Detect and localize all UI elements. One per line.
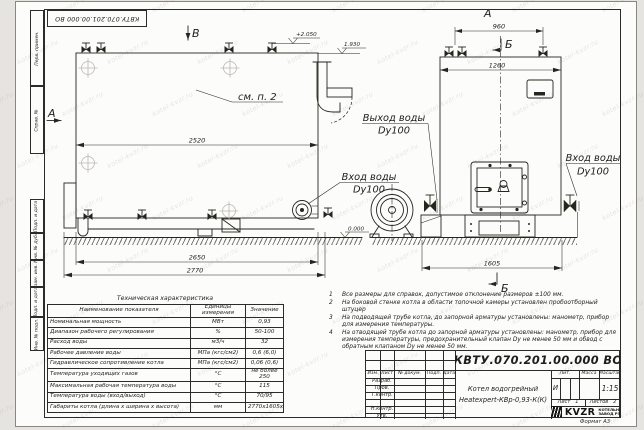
view-label-A-front: А bbox=[483, 7, 492, 20]
furnace-door-icon bbox=[471, 162, 528, 213]
frame-column-vzam-inv: Взам. инв. № bbox=[30, 260, 44, 287]
table-cell: % bbox=[191, 328, 246, 338]
roof-valve-icon bbox=[225, 43, 234, 53]
elevation-0000: 0.000 bbox=[341, 227, 370, 238]
table-cell: °С bbox=[191, 382, 246, 392]
mid-foot bbox=[198, 229, 212, 236]
frame-column-sprav: Справ. № bbox=[30, 86, 44, 154]
frame-column-podp-data-2: Подп. и дата bbox=[30, 287, 44, 317]
svg-text:Dy100: Dy100 bbox=[353, 185, 385, 196]
table-cell: °С bbox=[191, 369, 246, 382]
doc-number: КВТУ.070.201.00.000 ВО bbox=[455, 351, 621, 370]
svg-text:Dy100: Dy100 bbox=[378, 126, 410, 137]
svg-text:Вход воды: Вход воды bbox=[342, 172, 397, 183]
mass-label: Масса bbox=[579, 370, 599, 378]
table-row: Гидравлическое сопротивление котлаМПа (к… bbox=[48, 359, 284, 369]
table-cell: МВт bbox=[191, 318, 246, 328]
frame-column-podp-data-1: Подп. и дата bbox=[30, 199, 44, 233]
scale-label: Масштаб bbox=[599, 370, 621, 378]
table-row: Габариты котла (длина х ширина х высота)… bbox=[48, 402, 284, 412]
table-cell: Гидравлическое сопротивление котла bbox=[48, 359, 191, 369]
svg-text:Dy100: Dy100 bbox=[577, 167, 609, 178]
elevation-2050-label: +2.050 bbox=[296, 32, 317, 38]
table-header: Наименование показателя bbox=[48, 305, 191, 318]
row-utv: Утв. bbox=[366, 413, 396, 420]
product-name: Котел водогрейный Heatexpert-КВр-0,93-К(… bbox=[455, 370, 551, 419]
kvzr-logo: KVZR КОТЕЛЬНЫЙ ЗАВОД РЭП bbox=[551, 406, 621, 419]
drain-valve-icon bbox=[208, 210, 217, 220]
frame-column-perv-primen: Перв. примен. bbox=[30, 10, 44, 86]
kvzr-logo-icon bbox=[551, 406, 562, 418]
inlet-side-callout: Вход воды Dy100 bbox=[308, 172, 399, 204]
frame-column-inv-podl: Инв. № подл. bbox=[30, 317, 44, 351]
note-number: 1 bbox=[329, 292, 342, 299]
tech-table: Наименование показателя Единицы измерени… bbox=[47, 304, 284, 413]
dimension-2650: 2650 bbox=[76, 232, 318, 265]
base-pedestal bbox=[465, 215, 535, 237]
table-cell: Температура уходящих газов bbox=[48, 369, 191, 382]
position-mark-icon bbox=[221, 59, 240, 78]
table-cell: 50-100 bbox=[246, 328, 284, 338]
note-item: 3На подводящей трубе котла, до запорной … bbox=[329, 315, 620, 329]
elevation-1930: 1.930 bbox=[318, 42, 366, 54]
lit-value: И bbox=[551, 378, 560, 399]
table-cell: не более 250 bbox=[246, 369, 284, 382]
table-cell: Габариты котла (длина х ширина х высота) bbox=[48, 402, 191, 412]
note-text: На боковой стенке котла в области топочн… bbox=[342, 300, 620, 314]
table-row: Температура уходящих газов°Сне более 250 bbox=[48, 369, 284, 382]
col-doc: № докум. bbox=[394, 370, 425, 378]
scale-value: 1:15 bbox=[599, 378, 621, 399]
dimension-1260: 1260 bbox=[440, 62, 561, 73]
padlock-icon bbox=[498, 181, 509, 192]
position-mark-icon bbox=[79, 59, 98, 78]
table-row: Расход водым3/ч32 bbox=[48, 338, 284, 348]
note-item: 2На боковой стенке котла в области топоч… bbox=[329, 300, 620, 314]
table-cell: 115 bbox=[246, 382, 284, 392]
dim-1260-label: 1260 bbox=[489, 62, 506, 70]
note-text: На отводящей трубе котла до запорной арм… bbox=[342, 330, 620, 351]
col-izm: Изм. bbox=[366, 370, 380, 378]
table-cell: Максимальная рабочая температура воды bbox=[48, 382, 191, 392]
table-row: Диапазон рабочего регулирования%50-100 bbox=[48, 328, 284, 338]
dimension-960: 960 bbox=[455, 23, 543, 46]
table-cell: Температура воды (вход/выход) bbox=[48, 392, 191, 402]
rear-smokebox bbox=[64, 183, 76, 228]
dimension-2520: 2520 bbox=[76, 137, 318, 148]
lit-label: Лит. bbox=[551, 370, 579, 378]
sheets-cell: Листов2 bbox=[585, 399, 621, 406]
row-nkontr: Н.контр. bbox=[366, 406, 396, 413]
col-sign: Подп. bbox=[425, 370, 443, 378]
table-row: Рабочее давление водыМПа (кгс/см2)0,6 (6… bbox=[48, 348, 284, 358]
row-tkontr: Т.контр. bbox=[366, 392, 396, 399]
note-item: 4На отводящей трубе котла до запорной ар… bbox=[329, 330, 620, 351]
table-cell: 0,6 (6,0) bbox=[246, 348, 284, 358]
svg-text:Вход воды: Вход воды bbox=[566, 153, 621, 164]
elevation-0000-label: 0.000 bbox=[348, 227, 364, 233]
control-panel bbox=[527, 80, 553, 98]
flue-assembly bbox=[313, 62, 352, 123]
table-cell: мм bbox=[191, 402, 246, 412]
roof-valve-icon bbox=[539, 47, 548, 57]
view-label-B: В bbox=[186, 26, 200, 40]
kvzr-logo-subtext: КОТЕЛЬНЫЙ ЗАВОД РЭП bbox=[598, 408, 621, 417]
see-note-callout: см. п. 2 bbox=[196, 90, 283, 103]
elevation-2050: +2.050 bbox=[272, 32, 320, 44]
note-number: 3 bbox=[329, 315, 342, 329]
table-cell: Диапазон рабочего регулирования bbox=[48, 328, 191, 338]
dim-2650-label: 2650 bbox=[189, 254, 206, 262]
table-cell: МПа (кгс/см2) bbox=[191, 359, 246, 369]
table-cell: 70/95 bbox=[246, 392, 284, 402]
pipe-valve-icon bbox=[324, 208, 333, 218]
roof-valve-icon bbox=[445, 47, 454, 57]
dim-2520-label: 2520 bbox=[189, 137, 206, 145]
note-number: 2 bbox=[329, 300, 342, 314]
table-cell: Номинальная мощность bbox=[48, 318, 191, 328]
table-cell: 0,06 (0,6) bbox=[246, 359, 284, 369]
svg-text:А: А bbox=[47, 107, 56, 120]
table-cell: 2770х1605х2050 bbox=[246, 402, 284, 412]
position-mark-icon bbox=[79, 154, 98, 173]
row-prov: Пров. bbox=[366, 385, 396, 392]
title-block: КВТУ.070.201.00.000 ВО Котел водогрейный… bbox=[365, 350, 620, 418]
table-row: Номинальная мощностьМВт0,93 bbox=[48, 318, 284, 328]
frame-column-inv-dubl: Инв. № дубл. bbox=[30, 233, 44, 260]
note-number: 4 bbox=[329, 330, 342, 351]
table-cell: 32 bbox=[246, 338, 284, 348]
table-header: Значение bbox=[246, 305, 284, 318]
corner-stamp: КВТУ.070.201.00.000 ВО bbox=[47, 10, 147, 27]
table-row: Температура воды (вход/выход)°С70/95 bbox=[48, 392, 284, 402]
tech-characteristics-block: Техническая характеристика Наименование … bbox=[47, 295, 283, 413]
roof-valve-icon bbox=[458, 47, 467, 57]
roof-valve-icon bbox=[97, 43, 106, 53]
table-cell: 0,93 bbox=[246, 318, 284, 328]
format-label: Формат А3 bbox=[560, 419, 630, 425]
inlet-flange-icon bbox=[293, 201, 319, 220]
note-text: Все размеры для справок, допустимое откл… bbox=[342, 292, 563, 299]
front-foot bbox=[78, 218, 88, 236]
drain-valve-icon bbox=[138, 210, 147, 220]
note-item: 1Все размеры для справок, допустимое отк… bbox=[329, 292, 620, 299]
dim-2770-label: 2770 bbox=[187, 267, 204, 275]
corner-stamp-number: КВТУ.070.201.00.000 ВО bbox=[55, 15, 139, 22]
svg-text:В: В bbox=[192, 27, 200, 40]
row-razrab: Разраб. bbox=[366, 378, 396, 385]
svg-text:см. п. 2: см. п. 2 bbox=[238, 92, 277, 103]
dim-1605-label: 1605 bbox=[484, 260, 501, 268]
elevation-1930-label: 1.930 bbox=[344, 42, 360, 48]
col-list: Лист bbox=[380, 370, 394, 378]
outlet-valve-icon bbox=[421, 195, 441, 237]
inlet-front-callout: Вход воды Dy100 bbox=[566, 153, 621, 196]
drawing-page: kotel-kvzr.rukotel-kvzr.rukotel-kvzr.ruk… bbox=[0, 0, 644, 430]
notes-block: 1Все размеры для справок, допустимое отк… bbox=[329, 292, 620, 352]
col-date: Дата bbox=[443, 370, 455, 378]
roof-valve-icon bbox=[268, 43, 277, 53]
svg-text:Выход воды: Выход воды bbox=[363, 113, 426, 124]
note-text: На подводящей трубе котла, до запорной а… bbox=[342, 315, 620, 329]
table-cell: Рабочее давление воды bbox=[48, 348, 191, 358]
table-cell: МПа (кгс/см2) bbox=[191, 348, 246, 358]
dim-960-label: 960 bbox=[493, 23, 505, 31]
roof-valve-icon bbox=[82, 43, 91, 53]
table-cell: °С bbox=[191, 392, 246, 402]
table-header: Единицы измерения bbox=[191, 305, 246, 318]
boiler-side-view bbox=[64, 43, 413, 241]
sheet-cell: Лист1 bbox=[551, 399, 585, 406]
svg-text:Б: Б bbox=[505, 38, 513, 51]
section-label-B-top: Б bbox=[493, 38, 513, 52]
table-cell: Расход воды bbox=[48, 338, 191, 348]
inlet-valve-icon bbox=[561, 195, 579, 237]
ground-hatch bbox=[372, 238, 577, 245]
table-row: Максимальная рабочая температура воды°С1… bbox=[48, 382, 284, 392]
table-header-row: Наименование показателя Единицы измерени… bbox=[48, 305, 284, 318]
view-label-A-side: А bbox=[47, 107, 61, 123]
table-cell: м3/ч bbox=[191, 338, 246, 348]
tech-table-title: Техническая характеристика bbox=[47, 295, 283, 302]
ground-hatch bbox=[64, 238, 362, 245]
